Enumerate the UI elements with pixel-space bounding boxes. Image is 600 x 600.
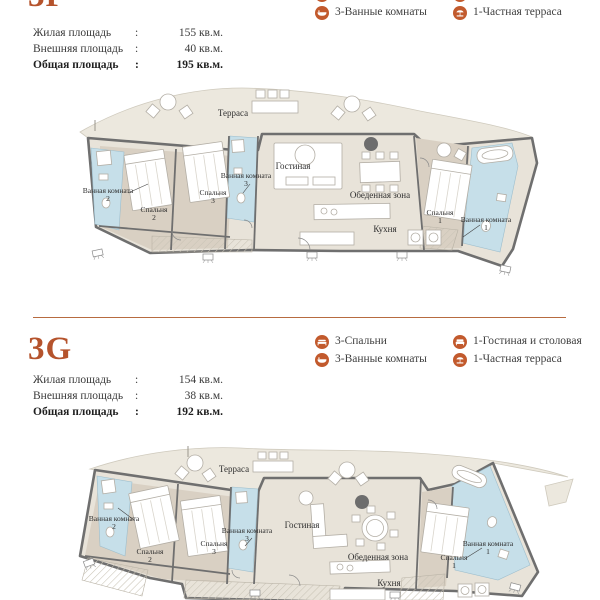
dining-chair: [352, 515, 360, 522]
room-label-dining: Обеденная зона: [348, 552, 408, 562]
room-number: 3: [212, 547, 216, 556]
terrace-table: [160, 94, 176, 110]
stat-colon: :: [135, 389, 143, 403]
kitchen-sink: [321, 208, 327, 214]
kitchen-sink: [331, 209, 337, 215]
unit-title-3g: 3G: [28, 333, 72, 366]
terrace-table: [344, 96, 360, 112]
sofa-icon: [453, 335, 467, 349]
terrace-chair: [280, 452, 288, 459]
legend-item-bathrooms: 3-Ванные комнаты: [315, 352, 427, 367]
terrace-table: [252, 101, 298, 113]
terrace-table: [187, 455, 203, 471]
legend-item-bedrooms: 3-Спальни: [315, 334, 387, 349]
legend-item-terrace: 1-Частная терраса: [453, 352, 562, 367]
stat-colon: :: [135, 373, 143, 387]
room-number: 1: [484, 223, 488, 232]
bed-2: [124, 149, 172, 211]
toilet: [237, 193, 245, 203]
terrace-table: [339, 462, 355, 478]
room-label-dining: Обеденная зона: [350, 190, 410, 200]
dining-chair: [376, 152, 384, 159]
shower: [232, 140, 245, 153]
terrace-chair: [256, 90, 265, 98]
room-label-kitchen: Кухня: [377, 578, 400, 588]
bed-1: [421, 502, 470, 557]
room-number: 2: [106, 194, 110, 203]
legend-label: 1-Частная терраса: [473, 352, 562, 367]
hatch-balcony-right: [400, 574, 445, 600]
brochure-page: 3F 3-Спальни 3-Ванные комнаты 1-Гостиная…: [0, 0, 600, 600]
terrace-chair: [437, 143, 451, 157]
terrace-chair: [258, 452, 266, 459]
terrace-chair: [280, 90, 289, 98]
dining-chair: [390, 530, 398, 537]
room-number: 3: [245, 534, 249, 543]
appliance: [475, 583, 489, 596]
dining-chair: [367, 506, 375, 513]
room-label-living: Гостиная: [285, 520, 320, 530]
dining-table: [360, 161, 401, 182]
room-number: 1: [452, 561, 456, 570]
dining-table: [362, 515, 388, 541]
shower: [96, 150, 111, 165]
parasol-icon: [453, 353, 467, 367]
dining-chair: [356, 539, 364, 546]
room-label-kitchen: Кухня: [373, 224, 396, 234]
appliance: [458, 584, 472, 597]
legend-label: 3-Спальни: [335, 334, 387, 349]
stat-row-living-area: Жилая площадь:154 кв.м.: [33, 373, 223, 387]
floor-plan-3f: Терраса Ванная комната 2 Спальня 2 Спаль…: [0, 0, 600, 312]
stat-value: 38 кв.м.: [143, 389, 223, 403]
terrace-table: [253, 461, 293, 472]
room-number: 1: [438, 216, 442, 225]
stat-row-total-area: Общая площадь:192 кв.м.: [33, 405, 223, 419]
stat-value: 154 кв.м.: [143, 373, 223, 387]
armchair: [299, 491, 313, 505]
room-label-terrace: Терраса: [219, 464, 249, 474]
column: [364, 137, 378, 151]
stat-value: 192 кв.м.: [143, 405, 223, 419]
room-number: 2: [148, 555, 152, 564]
bath-icon: [315, 353, 329, 367]
dining-chair: [377, 543, 385, 550]
room-label-terrace: Терраса: [218, 108, 248, 118]
column: [355, 495, 369, 509]
terrace-chair: [269, 452, 277, 459]
room-number: 1: [486, 547, 490, 556]
section-divider: [33, 317, 566, 318]
stat-row-external-area: Внешняя площадь:38 кв.м.: [33, 389, 223, 403]
shower: [236, 492, 248, 504]
dining-chair: [362, 152, 370, 159]
appliance: [426, 230, 441, 245]
stat-label: Внешняя площадь: [33, 389, 135, 403]
appliance: [408, 230, 423, 245]
stat-colon: :: [135, 405, 143, 419]
legend-label: 3-Ванные комнаты: [335, 352, 427, 367]
sink: [496, 193, 506, 201]
floor-plan-3g: Терраса Ванная комната 2 Спальня 2 Спаль…: [0, 430, 600, 600]
sink: [99, 174, 108, 180]
room-label-living: Гостиная: [276, 161, 311, 171]
sink: [104, 503, 113, 509]
legend-item-living: 1-Гостиная и столовая: [453, 334, 582, 349]
terrace-step: [545, 479, 573, 506]
room-number: 3: [244, 179, 248, 188]
bed-icon: [315, 335, 329, 349]
dining-chair: [387, 512, 395, 519]
room-number: 2: [112, 522, 116, 531]
dining-chair: [390, 152, 398, 159]
room-number: 2: [152, 213, 156, 222]
kitchen-counter: [330, 589, 385, 600]
stat-label: Общая площадь: [33, 405, 135, 419]
stat-label: Жилая площадь: [33, 373, 135, 387]
kitchen-sink: [337, 564, 343, 570]
terrace-chair: [268, 90, 277, 98]
shower: [101, 479, 116, 494]
kitchen-sink: [347, 565, 353, 571]
room-number: 3: [211, 196, 215, 205]
legend-label: 1-Гостиная и столовая: [473, 334, 582, 349]
